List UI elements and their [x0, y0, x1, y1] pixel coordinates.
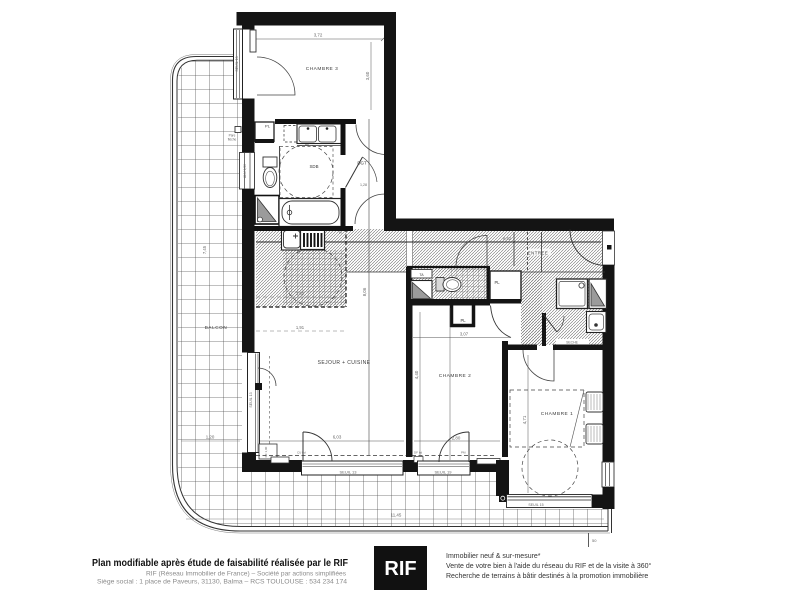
svg-text:ENTREE: ENTREE: [528, 251, 548, 256]
svg-text:SECHE: SECHE: [566, 341, 578, 345]
svg-text:PL: PL: [460, 318, 466, 323]
svg-text:Immobilier neuf & sur-mesure*: Immobilier neuf & sur-mesure*: [446, 553, 541, 560]
svg-text:PL: PL: [265, 124, 271, 129]
svg-text:1,28: 1,28: [360, 183, 367, 187]
svg-text:CHAMBRE 2: CHAMBRE 2: [439, 373, 472, 379]
svg-text:6,42: 6,42: [503, 236, 512, 241]
svg-text:SEUIL 13: SEUIL 13: [235, 56, 239, 71]
svg-text:SEJOUR + CUISINE: SEJOUR + CUISINE: [318, 360, 371, 366]
svg-text:2,80: 2,80: [452, 436, 461, 441]
svg-text:RIF (Réseau Immobilier de Fran: RIF (Réseau Immobilier de France) – Soci…: [146, 572, 346, 578]
svg-text:50: 50: [592, 538, 597, 543]
svg-text:Recherche de terrains à bâtir: Recherche de terrains à bâtir destinés à…: [446, 573, 648, 580]
svg-text:CU bd: CU bd: [297, 451, 306, 455]
svg-text:4,71: 4,71: [522, 415, 527, 424]
svg-text:ALU 1,50: ALU 1,50: [243, 164, 247, 178]
svg-text:3,72: 3,72: [314, 33, 323, 38]
svg-text:CHAMBRE 3: CHAMBRE 3: [306, 66, 339, 72]
svg-text:RIF: RIF: [384, 558, 416, 580]
svg-text:1,20: 1,20: [206, 435, 215, 440]
svg-text:6,03: 6,03: [333, 435, 342, 440]
svg-text:Siège social : 1 place de Pave: Siège social : 1 place de Paveurs, 31130…: [97, 580, 348, 586]
svg-text:SEUIL 19: SEUIL 19: [435, 470, 453, 475]
svg-text:7,45: 7,45: [202, 245, 207, 254]
svg-text:SDB: SDB: [309, 164, 318, 169]
svg-text:TA: TA: [419, 273, 424, 277]
svg-text:Plan modifiable après étude de: Plan modifiable après étude de faisabili…: [92, 557, 348, 569]
svg-text:SEUIL 13: SEUIL 13: [249, 392, 253, 407]
svg-text:SEUIL 13: SEUIL 13: [340, 470, 358, 475]
svg-text:4,40: 4,40: [414, 370, 419, 379]
svg-text:3,60: 3,60: [365, 71, 370, 80]
svg-text:CHAMBRE 1: CHAMBRE 1: [541, 411, 574, 417]
svg-text:8,06: 8,06: [362, 287, 367, 296]
svg-text:11,45: 11,45: [391, 513, 402, 518]
svg-text:BALCON: BALCON: [205, 325, 228, 330]
svg-text:1,91: 1,91: [296, 325, 305, 330]
svg-text:DF bd: DF bd: [414, 451, 423, 455]
svg-text:SEUIL 15: SEUIL 15: [528, 503, 543, 507]
svg-text:3,07: 3,07: [460, 332, 469, 337]
svg-text:Vente de votre bien à l'aide d: Vente de votre bien à l'aide du réseau d…: [446, 562, 652, 570]
svg-text:PL: PL: [494, 280, 500, 285]
svg-text:PM: PM: [461, 451, 466, 455]
svg-text:flèche: flèche: [228, 138, 237, 142]
svg-text:2,62: 2,62: [296, 291, 305, 296]
